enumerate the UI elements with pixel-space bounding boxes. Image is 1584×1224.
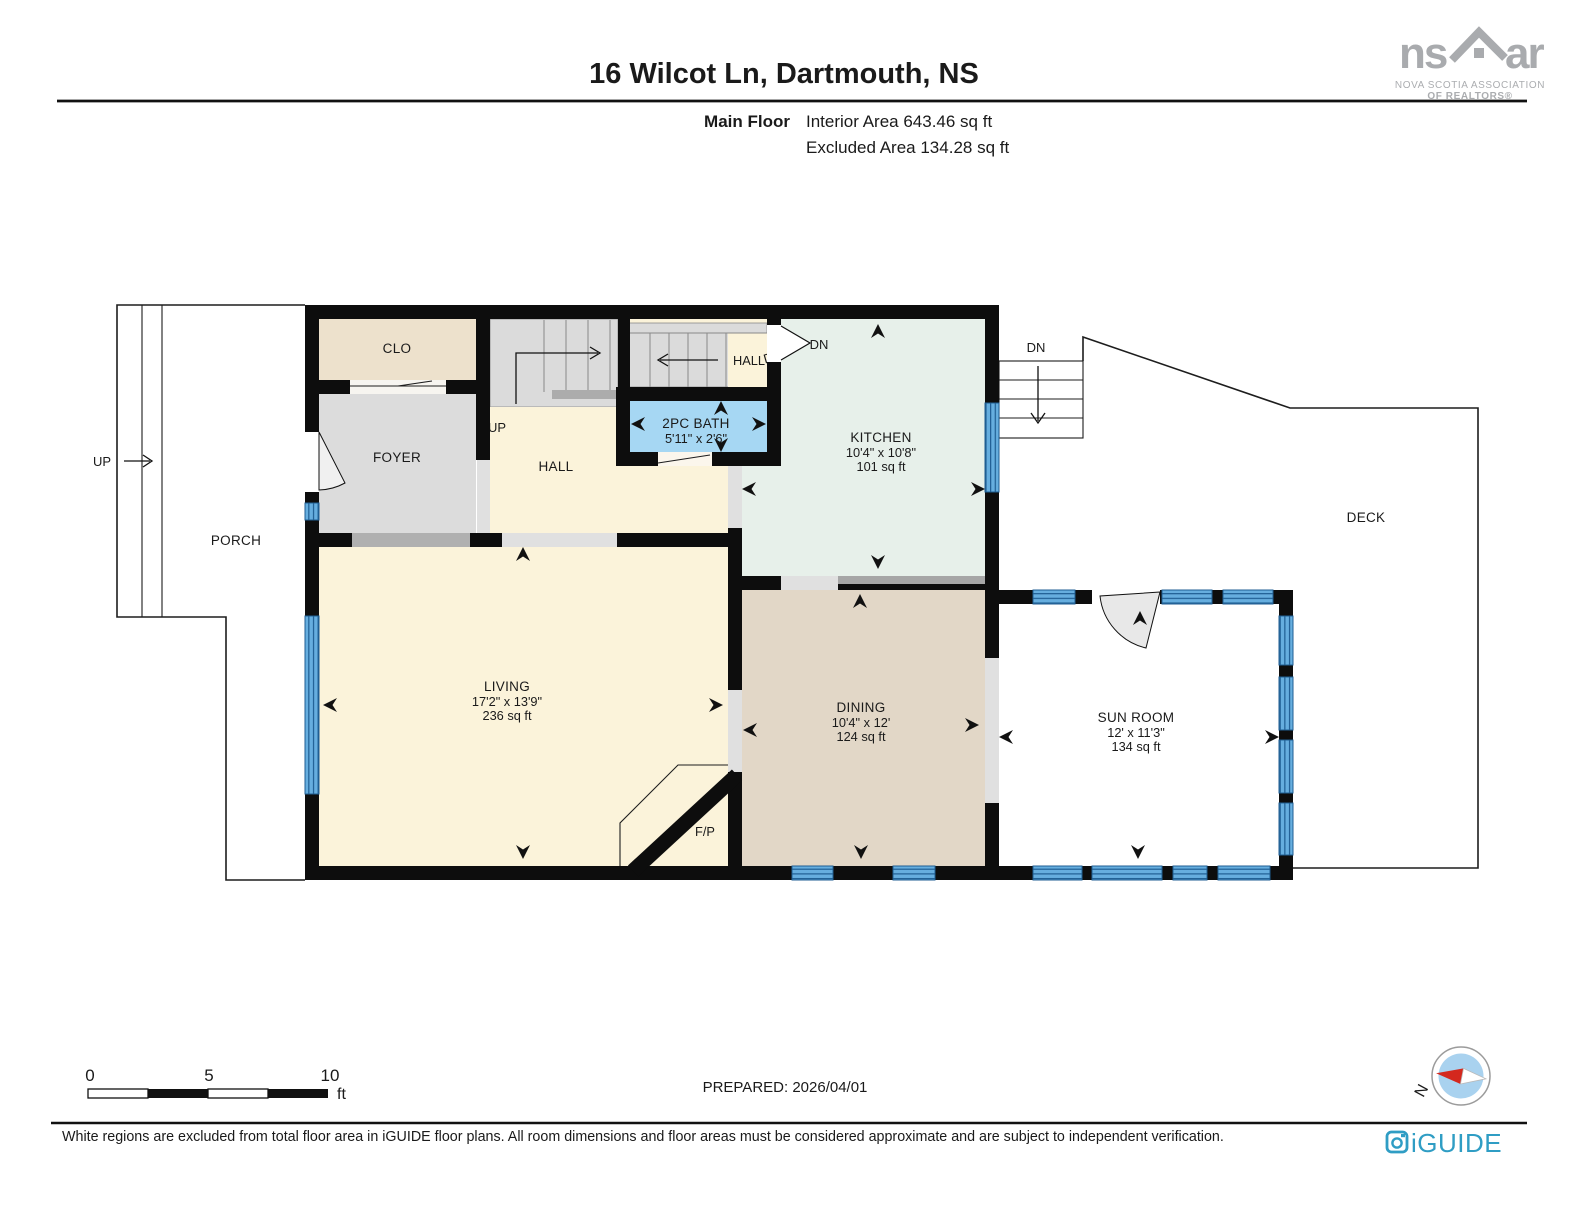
scale-tick-10: 10 bbox=[321, 1066, 340, 1085]
nsar-logo-ar: ar bbox=[1505, 29, 1544, 78]
disclaimer-text: White regions are excluded from total fl… bbox=[62, 1129, 1224, 1145]
wall-north bbox=[305, 305, 999, 319]
window-living-west bbox=[305, 616, 319, 794]
window-foyer-west bbox=[305, 503, 319, 520]
dining-area: 124 sq ft bbox=[836, 729, 886, 744]
living-label: LIVING bbox=[484, 679, 530, 694]
scale-bar: 0 5 10 ft bbox=[85, 1066, 346, 1103]
window-sunroom-north-1 bbox=[1033, 590, 1075, 604]
closet-label: CLO bbox=[383, 341, 412, 356]
window-sunroom-north-2 bbox=[1162, 590, 1212, 604]
basement-dn-label: DN bbox=[810, 337, 829, 352]
bath-dims: 5'11" x 2'6" bbox=[665, 431, 727, 446]
window-sunroom-south-1 bbox=[1033, 866, 1082, 880]
upper-hall-label: HALL bbox=[733, 353, 765, 368]
window-sunroom-south-3 bbox=[1173, 866, 1207, 880]
window-sunroom-east-4 bbox=[1279, 803, 1293, 855]
kitchen-area: 101 sq ft bbox=[856, 459, 906, 474]
window-kitchen-east bbox=[985, 403, 999, 492]
sunroom-label: SUN ROOM bbox=[1098, 710, 1175, 725]
bath-label: 2PC BATH bbox=[662, 416, 729, 431]
compass: N bbox=[1412, 1047, 1490, 1105]
scale-tick-5: 5 bbox=[204, 1066, 213, 1085]
basement-door-gap bbox=[767, 325, 781, 362]
dining-sunroom-opening bbox=[985, 658, 999, 803]
header: 16 Wilcot Ln, Dartmouth, NS Main Floor I… bbox=[57, 58, 1527, 157]
iguide-wordmark: iGUIDE bbox=[1411, 1128, 1502, 1158]
porch-up-label: UP bbox=[93, 454, 111, 469]
hall-living-opening bbox=[502, 533, 617, 547]
plan-canvas: 16 Wilcot Ln, Dartmouth, NS Main Floor I… bbox=[0, 0, 1584, 1224]
window-dining-south-1 bbox=[792, 866, 833, 880]
porch-label: PORCH bbox=[211, 533, 261, 548]
nsar-logo-ns: ns bbox=[1399, 29, 1447, 78]
foyer-living-door bbox=[352, 533, 470, 547]
page-title: 16 Wilcot Ln, Dartmouth, NS bbox=[589, 58, 979, 90]
scale-unit: ft bbox=[337, 1086, 346, 1103]
floor-plan-page: 16 Wilcot Ln, Dartmouth, NS Main Floor I… bbox=[0, 0, 1584, 1224]
stairs-up-label: UP bbox=[488, 420, 506, 435]
hall-label: HALL bbox=[539, 459, 574, 474]
deck-label: DECK bbox=[1347, 510, 1386, 525]
window-sunroom-east-1 bbox=[1279, 616, 1293, 665]
living-area: 236 sq ft bbox=[482, 708, 532, 723]
nsar-tagline-1: NOVA SCOTIA ASSOCIATION bbox=[1395, 80, 1545, 91]
deck-dn-label: DN bbox=[1027, 340, 1046, 355]
nsar-tagline-2: OF REALTORS® bbox=[1427, 91, 1512, 102]
interior-area: Interior Area 643.46 sq ft bbox=[806, 112, 992, 131]
window-sunroom-east-2 bbox=[1279, 677, 1293, 730]
window-sunroom-east-3 bbox=[1279, 740, 1293, 793]
floor-label: Main Floor bbox=[704, 112, 790, 131]
porch-outline: UP PORCH bbox=[93, 305, 305, 880]
iguide-logo: iGUIDE bbox=[1387, 1128, 1502, 1158]
front-door-gap bbox=[305, 432, 319, 492]
footer: White regions are excluded from total fl… bbox=[51, 1123, 1527, 1158]
foyer-label: FOYER bbox=[373, 450, 421, 465]
window-sunroom-south-4 bbox=[1218, 866, 1270, 880]
sunroom-area: 134 sq ft bbox=[1111, 739, 1161, 754]
kitchen-dining-opening bbox=[781, 576, 838, 590]
nsar-house-window-icon bbox=[1474, 48, 1484, 58]
living-dining-opening bbox=[728, 690, 742, 772]
compass-north-label: N bbox=[1412, 1082, 1432, 1100]
kitchen-counter bbox=[838, 576, 985, 584]
wall-stair-divider bbox=[618, 319, 630, 389]
kitchen-dims: 10'4" x 10'8" bbox=[846, 445, 916, 460]
scale-tick-0: 0 bbox=[85, 1066, 94, 1085]
wall-foyer-east bbox=[476, 319, 490, 460]
window-dining-south-2 bbox=[893, 866, 935, 880]
excluded-area: Excluded Area 134.28 sq ft bbox=[806, 138, 1009, 157]
window-sunroom-south-2 bbox=[1092, 866, 1162, 880]
dining-label: DINING bbox=[836, 700, 885, 715]
sunroom-dims: 12' x 11'3" bbox=[1107, 725, 1165, 740]
hall-kitchen-opening bbox=[728, 466, 742, 528]
dining-dims: 10'4" x 12' bbox=[832, 715, 891, 730]
living-dims: 17'2" x 13'9" bbox=[472, 694, 542, 709]
kitchen-label: KITCHEN bbox=[850, 430, 911, 445]
window-sunroom-north-3 bbox=[1223, 590, 1273, 604]
deck-stairs bbox=[999, 361, 1083, 438]
wall-bath-north bbox=[616, 387, 781, 401]
fireplace-label: F/P bbox=[695, 824, 715, 839]
nsar-logo: ns ar NOVA SCOTIA ASSOCIATION OF REALTOR… bbox=[1395, 29, 1545, 102]
prepared-date: PREPARED: 2026/04/01 bbox=[703, 1079, 868, 1096]
